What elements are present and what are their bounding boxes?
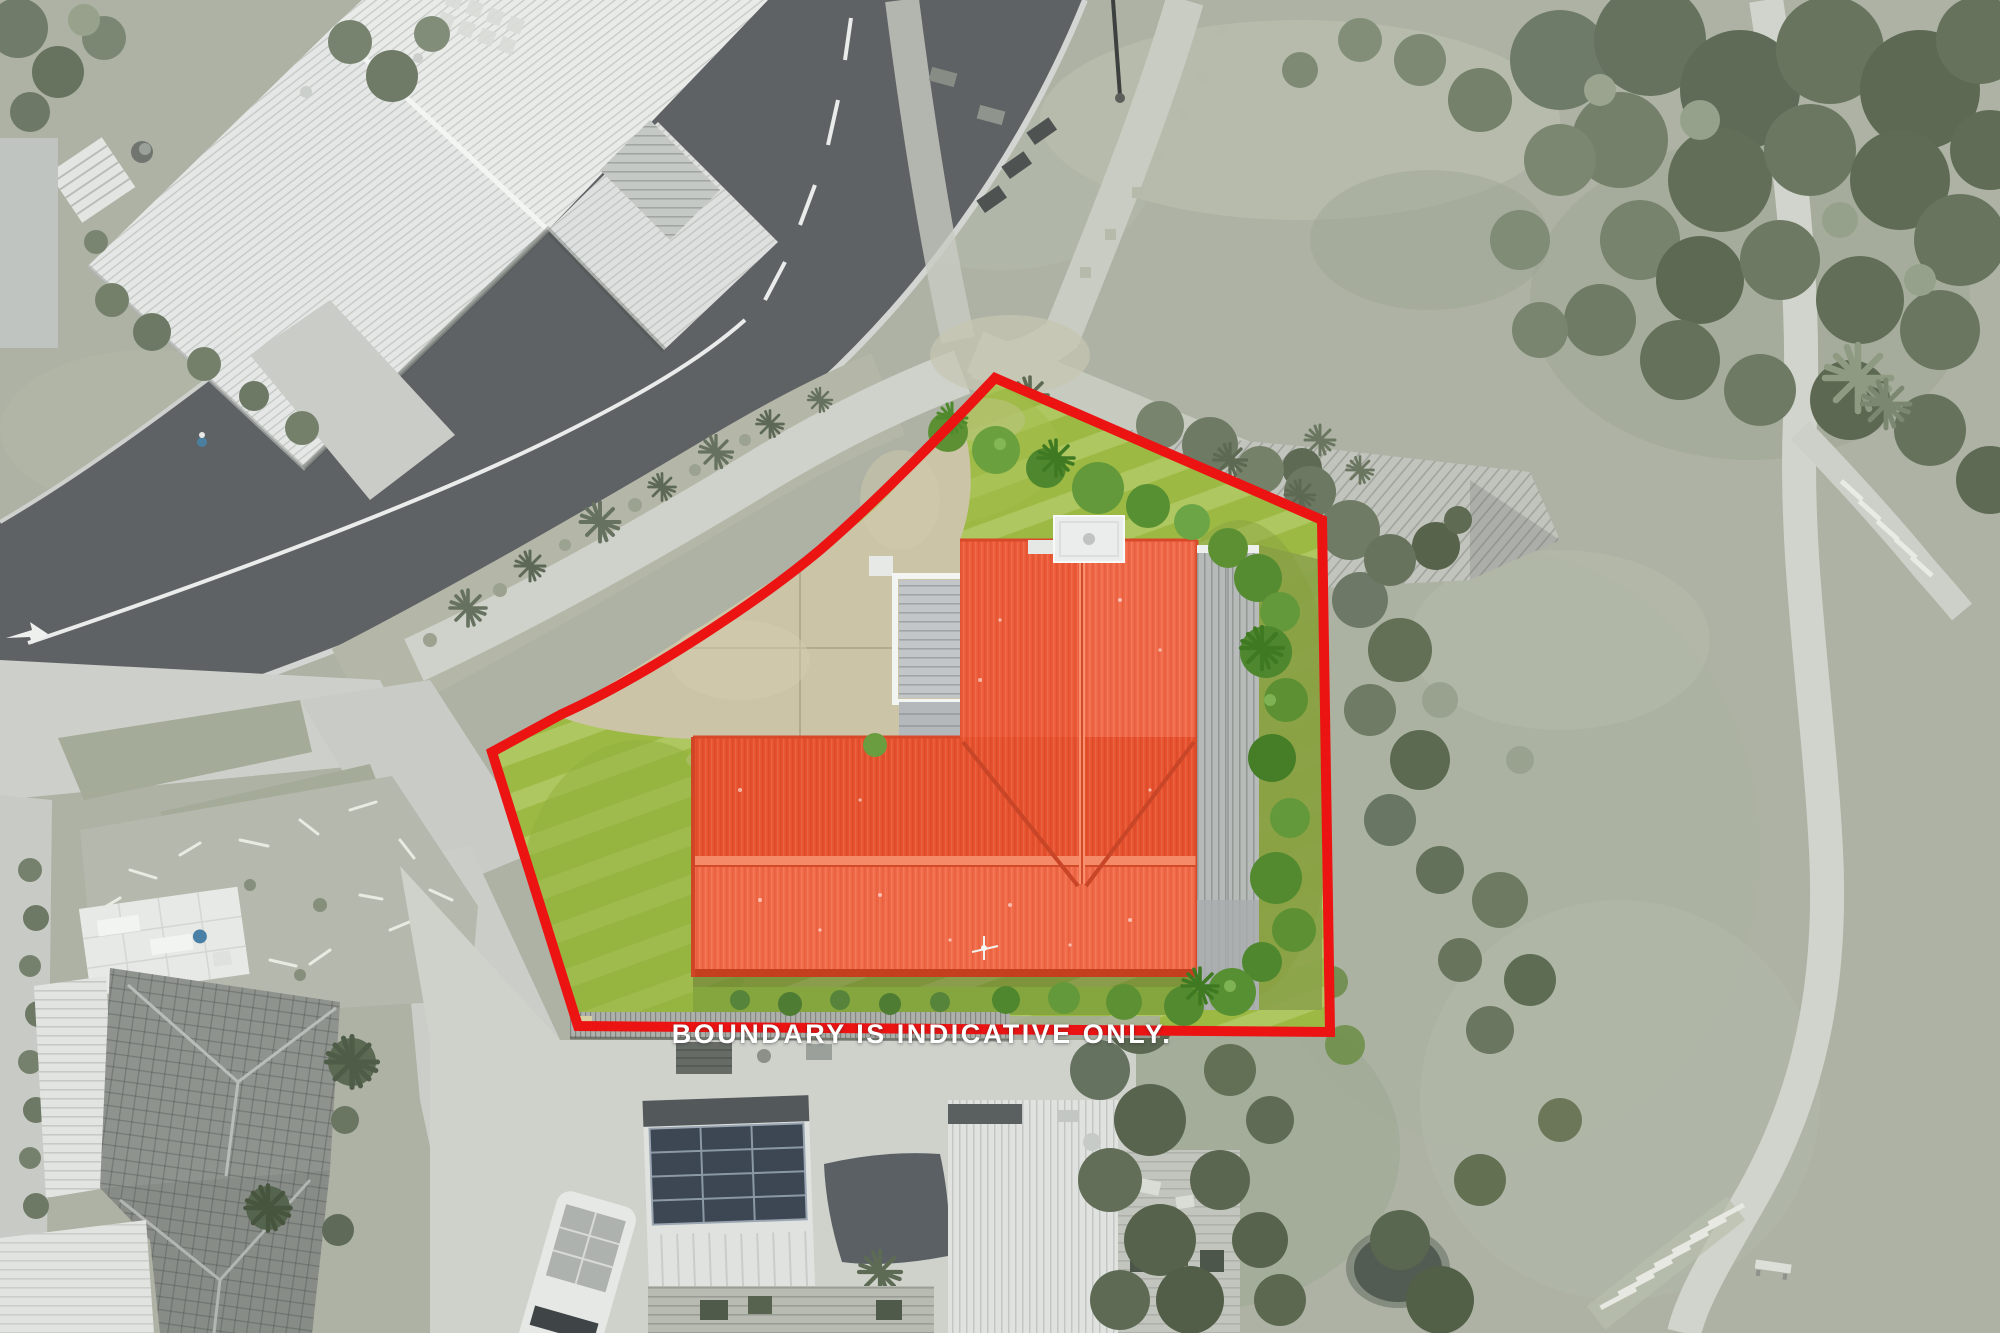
neighbor-roof-partial [0,138,58,348]
shade-sail [824,1153,949,1264]
aerial-scene [0,0,2000,1333]
aerial-property-photo: BOUNDARY IS INDICATIVE ONLY. [0,0,2000,1333]
solar-house [642,1095,815,1311]
person-figure [197,437,207,447]
east-deck [1197,545,1259,1010]
roof-ridge-horizontal [693,856,1197,866]
boundary-disclaimer-text: BOUNDARY IS INDICATIVE ONLY. [672,1019,1173,1050]
